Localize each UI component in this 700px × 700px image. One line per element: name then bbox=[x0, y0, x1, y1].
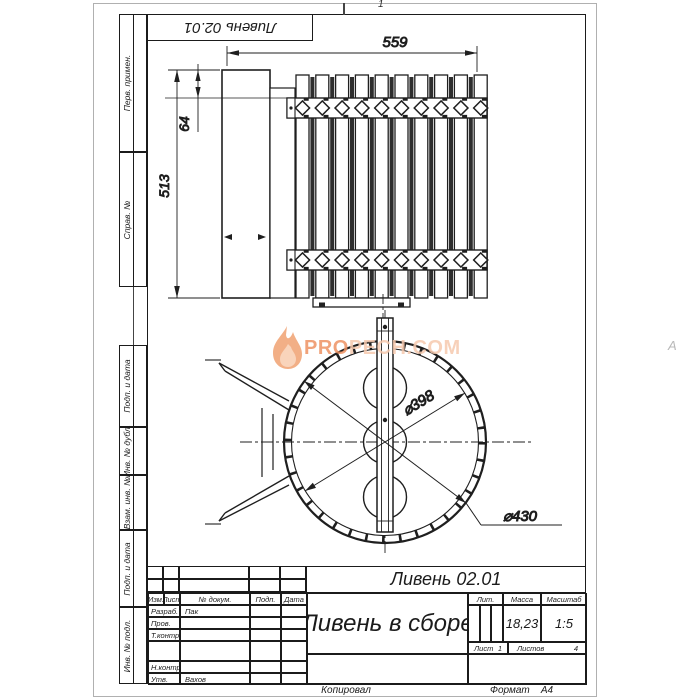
revision-row bbox=[147, 566, 306, 579]
sheet-value: 1 bbox=[498, 644, 502, 653]
part-name: Ливень в сборе bbox=[307, 610, 468, 638]
mass-value: 18,23 bbox=[503, 605, 541, 642]
designation-cell: Ливень 02.01 bbox=[306, 566, 586, 593]
tb-role: Разраб. bbox=[148, 605, 180, 617]
tb-header-podp: Подп. bbox=[250, 593, 281, 605]
tb-header-izm: Изм. bbox=[148, 593, 164, 605]
upper-band bbox=[287, 98, 488, 118]
sheets-value: 4 bbox=[574, 644, 578, 653]
tb-role: Утв. bbox=[148, 673, 180, 685]
tb-role: Пров. bbox=[148, 617, 180, 629]
tb-header-list: Лист bbox=[164, 593, 180, 605]
footer-format-value: А4 bbox=[541, 685, 553, 696]
dim-offset: 64 bbox=[176, 116, 192, 132]
part-name-cell: Ливень в сборе bbox=[307, 593, 468, 654]
mass-label: Масса bbox=[503, 593, 541, 605]
dim-height: 513 bbox=[156, 174, 172, 198]
tb-person: Вахов bbox=[180, 673, 250, 685]
lit-label: Лит. bbox=[468, 593, 503, 605]
org-cell bbox=[468, 654, 587, 685]
sheet-label: Лист bbox=[474, 644, 493, 653]
title-block: Изм. Лист № докум. Подп. Дата Разраб. Па… bbox=[147, 592, 586, 684]
sheets-cell: Листов 4 bbox=[508, 642, 587, 654]
tb-person: Пак bbox=[180, 605, 250, 617]
top-view bbox=[222, 70, 488, 320]
bottom-view: ⌀398 ⌀430 bbox=[205, 310, 562, 556]
footer-copy: Копировал bbox=[286, 685, 406, 696]
dim-outer-dia: ⌀430 bbox=[503, 508, 538, 525]
footer-format-label: Формат bbox=[490, 685, 530, 696]
tb-role: Т.контр. bbox=[148, 629, 180, 641]
dim-inner-dia: ⌀398 bbox=[400, 387, 438, 420]
scale-label: Масштаб bbox=[541, 593, 587, 605]
tb-header-doc: № докум. bbox=[180, 593, 250, 605]
lower-band bbox=[287, 250, 488, 270]
dim-width: 559 bbox=[382, 34, 408, 51]
revision-row bbox=[147, 579, 306, 592]
scale-value: 1:5 bbox=[541, 605, 587, 642]
bottom-view-dimensions: ⌀398 ⌀430 bbox=[304, 381, 562, 525]
footer-format: Формат А4 bbox=[490, 685, 553, 696]
sheets-label: Листов bbox=[517, 644, 544, 653]
tb-role: Н.контр. bbox=[148, 661, 180, 673]
tb-header-data: Дата bbox=[281, 593, 307, 605]
sheet-cell: Лист 1 bbox=[468, 642, 508, 654]
